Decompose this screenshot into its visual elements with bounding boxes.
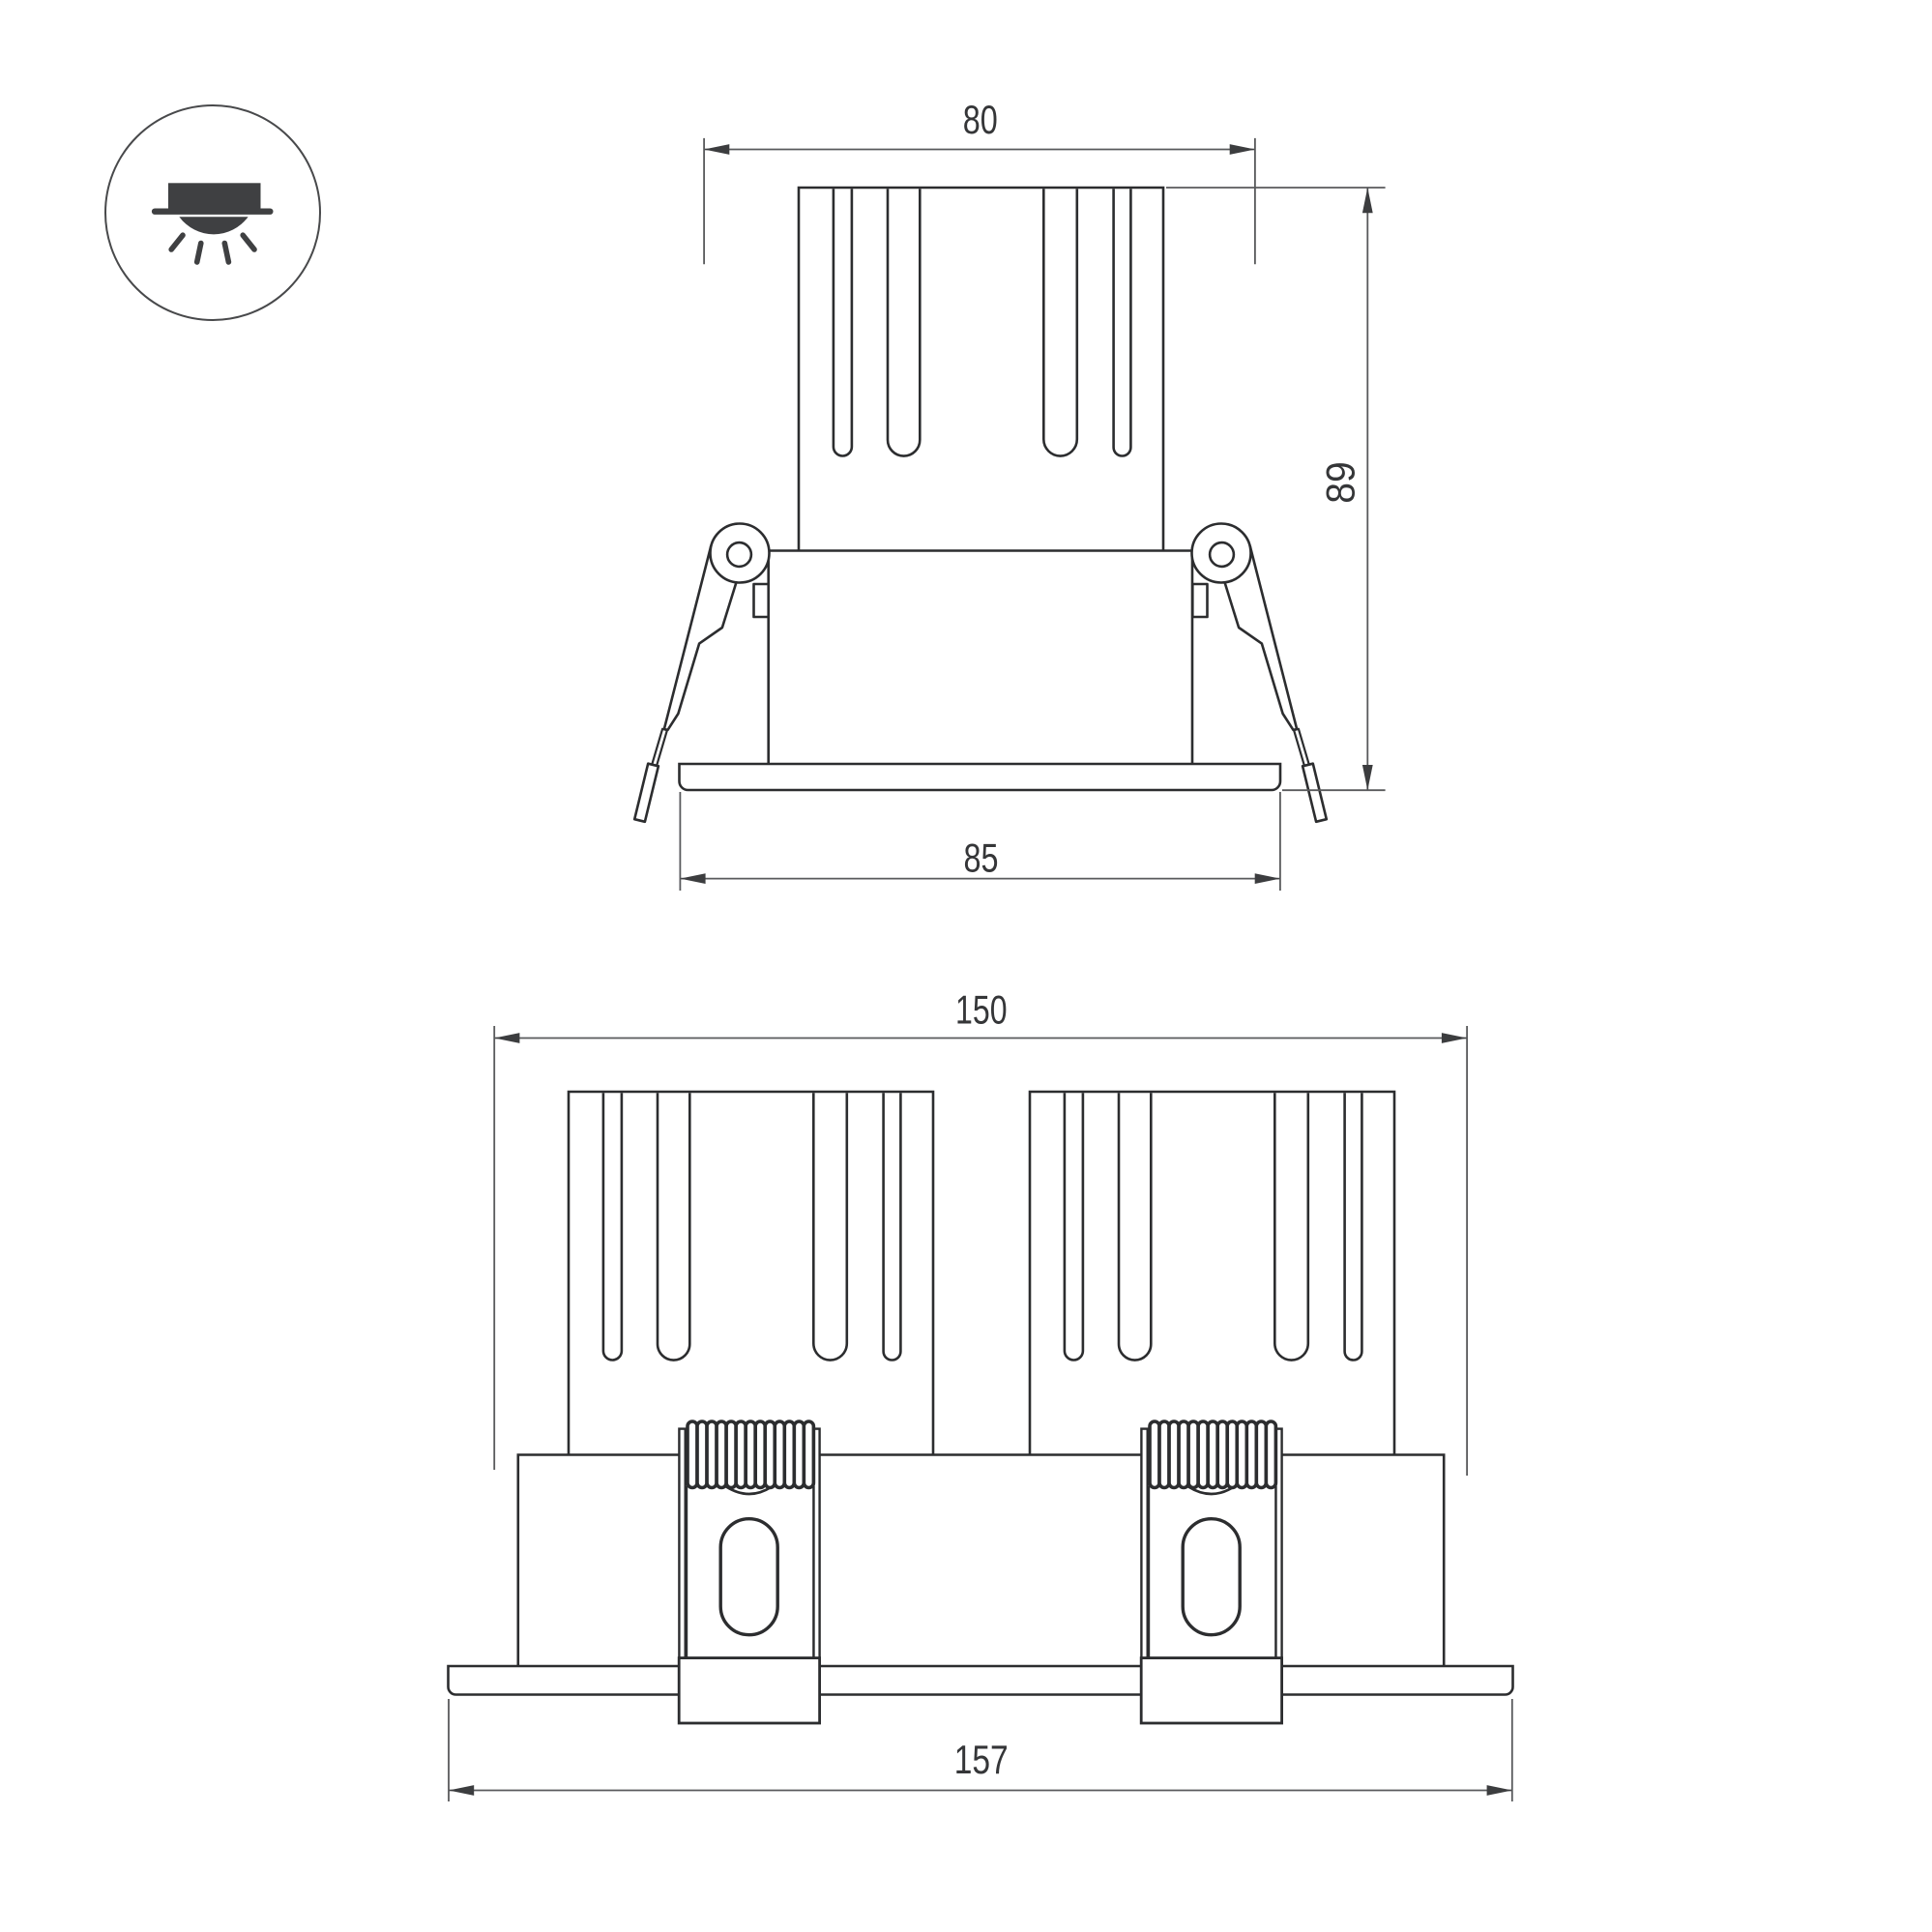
svg-text:80: 80 [963, 97, 998, 142]
svg-text:85: 85 [964, 835, 999, 881]
svg-text:89: 89 [1318, 461, 1363, 504]
svg-text:150: 150 [955, 987, 1008, 1033]
svg-text:157: 157 [954, 1737, 1009, 1782]
